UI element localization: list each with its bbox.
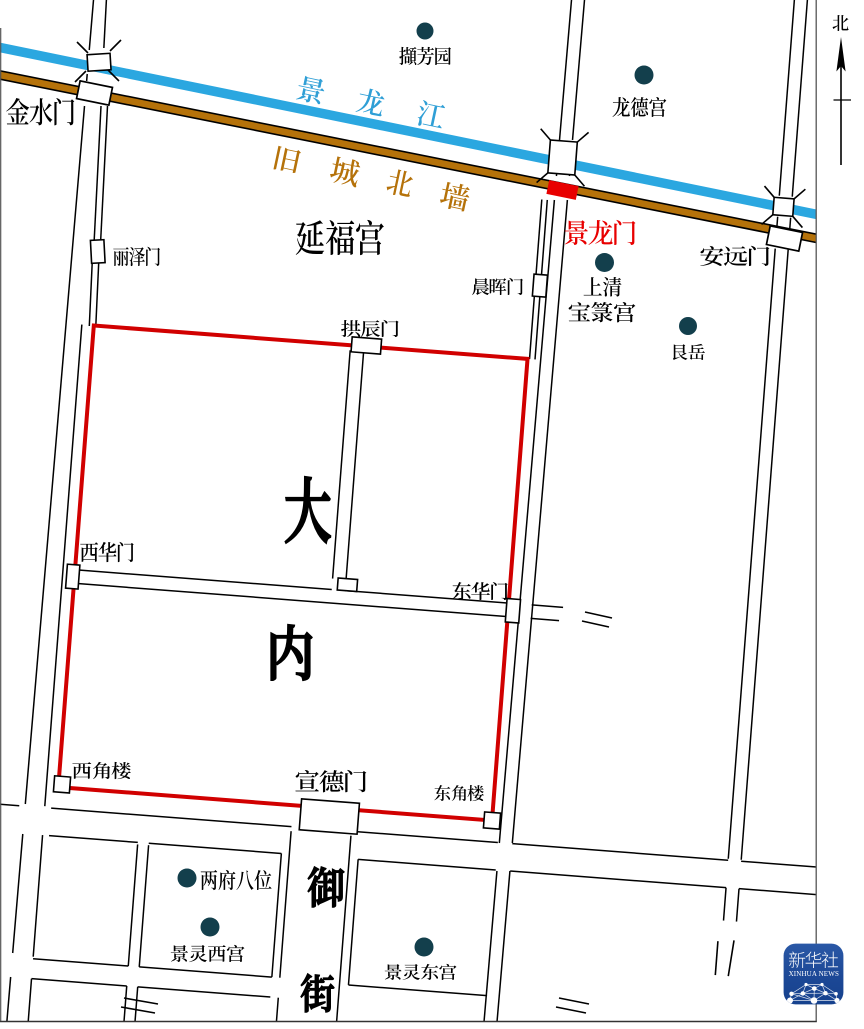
- svg-text:XINHUA NEWS: XINHUA NEWS: [789, 970, 839, 978]
